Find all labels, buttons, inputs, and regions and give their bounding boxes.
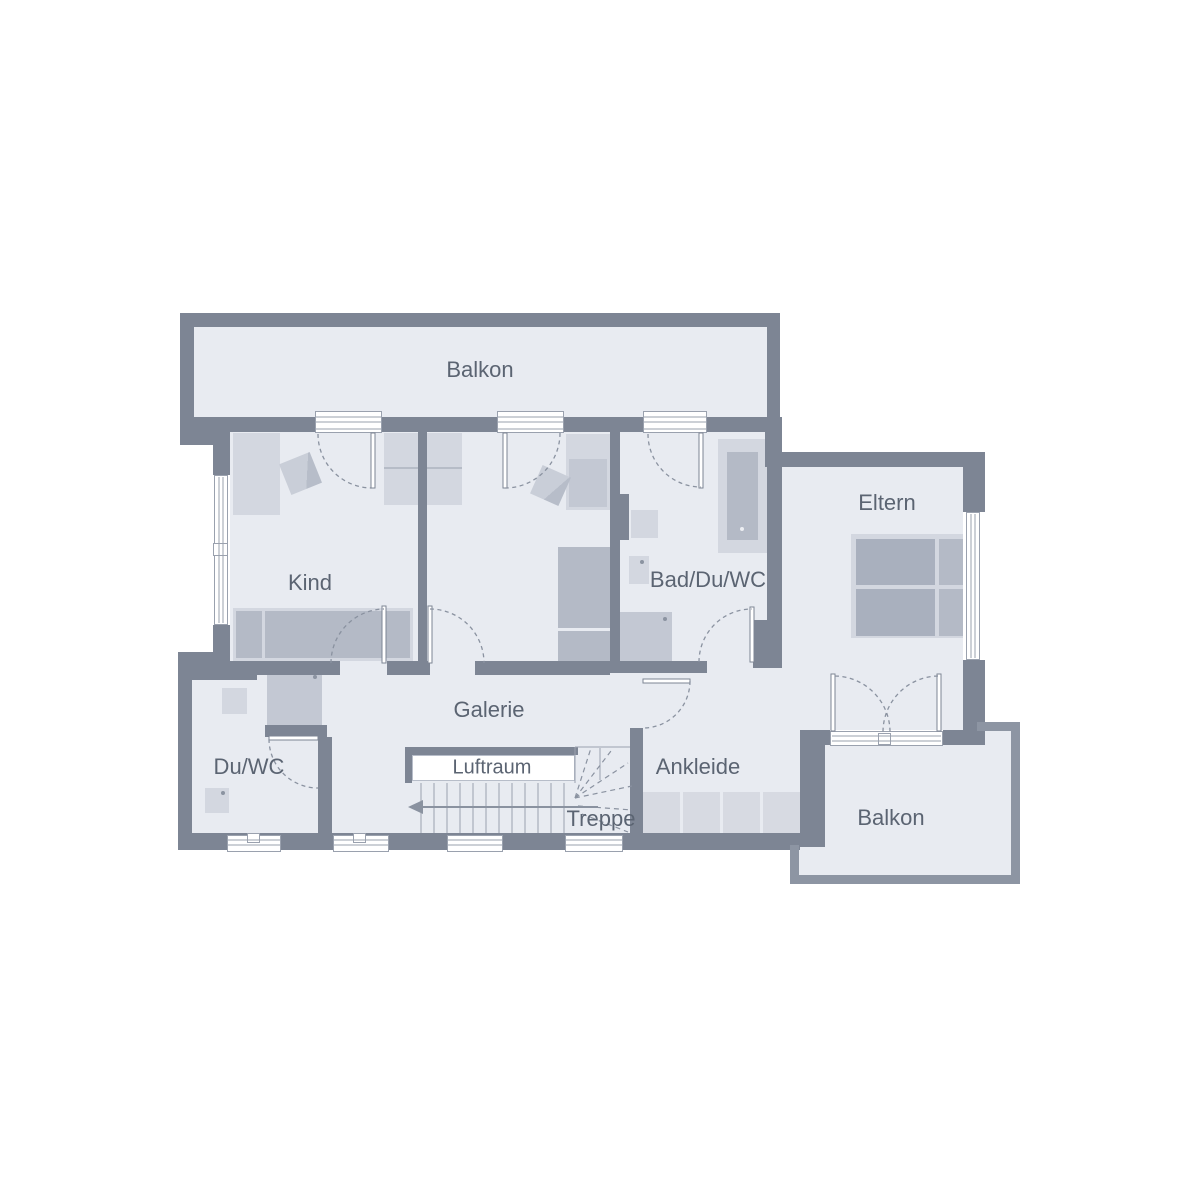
- room2-wall-desk: [427, 433, 462, 505]
- window-eltern-east: [966, 512, 980, 660]
- window-west-divider: [213, 543, 228, 556]
- wall-west-bottom: [178, 652, 192, 850]
- label-balkon-bottom: Balkon: [857, 805, 924, 831]
- room2-bed-mattress: [569, 459, 607, 507]
- label-balkon-top: Balkon: [446, 357, 513, 383]
- wall-kind-room2: [418, 432, 427, 661]
- kind-wall-desk: [384, 433, 418, 505]
- eltern-mattress-2: [856, 589, 935, 636]
- window-south-1-handle: [247, 833, 260, 843]
- wall-ankleide-right: [800, 730, 825, 847]
- balcony2-wall-right: [1011, 722, 1020, 884]
- eltern-mattress-1: [856, 539, 935, 585]
- label-ankleide: Ankleide: [656, 754, 740, 780]
- label-luftraum: Luftraum: [453, 757, 532, 780]
- label-bad: Bad/Du/WC: [650, 567, 766, 593]
- wall-balcony-right: [767, 313, 780, 430]
- wall-west-upper: [213, 430, 230, 475]
- label-treppe: Treppe: [567, 806, 636, 832]
- floor-plan: Balkon Kind Bad/Du/WC Eltern Du/WC Galer…: [0, 0, 1200, 1200]
- duwc-wc: [205, 788, 229, 813]
- wall-duwc-right: [318, 737, 332, 833]
- wall-eltern-jog: [753, 620, 782, 668]
- bathtub-drain: [740, 527, 744, 531]
- balcony2-wall-left: [790, 845, 799, 884]
- wall-eltern-right-upper: [963, 467, 985, 512]
- duwc-shower-dot: [313, 675, 317, 679]
- wall-room2-south: [475, 661, 610, 675]
- duwc-shower: [267, 671, 322, 726]
- bath-wc-dot: [640, 560, 644, 564]
- window-south-4: [565, 835, 623, 852]
- wall-eltern-bottom-right: [943, 730, 985, 745]
- label-duwc: Du/WC: [214, 754, 285, 780]
- wall-between-doors: [387, 661, 430, 675]
- eltern-pillow-1: [939, 539, 963, 585]
- label-kind: Kind: [288, 570, 332, 596]
- window-south-3: [447, 835, 503, 852]
- bath-wc: [629, 556, 649, 584]
- luftraum-border-left: [405, 747, 412, 783]
- balcony2-wall-bottom: [790, 875, 1020, 884]
- wall-room2-bad: [610, 432, 620, 661]
- balcony-door-kind: [315, 411, 382, 433]
- wall-duwc-inner: [265, 725, 327, 737]
- wall-bad-south: [610, 661, 707, 673]
- wall-duwc-top: [192, 668, 257, 680]
- wardrobe-section: [723, 792, 760, 833]
- window-south-2-handle: [353, 833, 366, 843]
- wardrobe-section: [683, 792, 720, 833]
- ankleide-wardrobe: [643, 792, 800, 833]
- label-eltern: Eltern: [858, 490, 915, 516]
- wardrobe-section: [763, 792, 800, 833]
- wall-balcony-top: [180, 313, 780, 327]
- balcony-door-room2: [497, 411, 564, 433]
- wall-eltern-top: [775, 452, 985, 467]
- french-door-handle: [878, 733, 891, 745]
- wardrobe-section: [643, 792, 680, 833]
- room2-wardrobe-upper: [558, 547, 610, 628]
- kind-desk: [233, 433, 280, 515]
- kind-bed-pillow: [236, 611, 262, 658]
- kind-bed-mattress: [265, 611, 410, 658]
- duwc-wc-dot: [221, 791, 225, 795]
- balcony-door-bad: [643, 411, 707, 433]
- luftraum-border-top: [405, 747, 578, 755]
- label-galerie: Galerie: [454, 697, 525, 723]
- balcony-bottom-notch: [985, 731, 1011, 745]
- room2-wardrobe-lower: [558, 631, 610, 661]
- bath-washbasin: [631, 510, 658, 538]
- duwc-washbasin: [222, 688, 247, 714]
- bath-shower-dot: [663, 617, 667, 621]
- eltern-pillow-2: [939, 589, 963, 636]
